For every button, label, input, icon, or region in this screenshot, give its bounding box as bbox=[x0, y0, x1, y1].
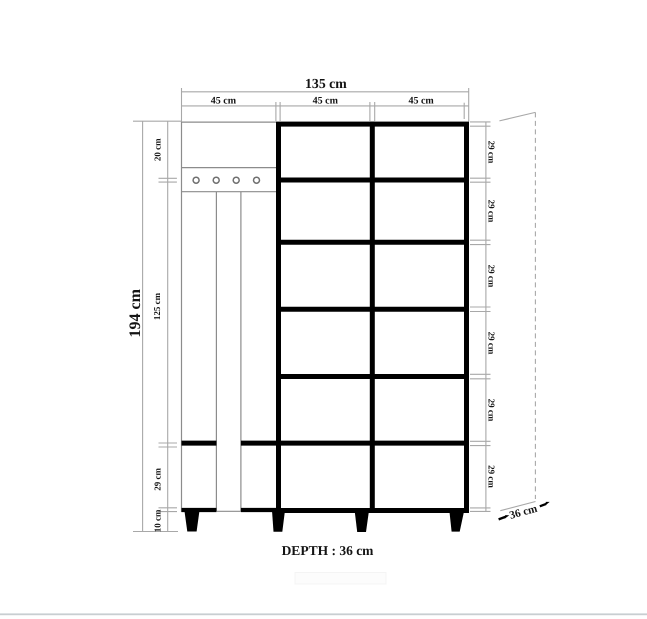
svg-text:29 cm: 29 cm bbox=[486, 332, 496, 355]
svg-text:45 cm: 45 cm bbox=[408, 95, 434, 106]
svg-text:20 cm: 20 cm bbox=[152, 138, 162, 161]
svg-text:29 cm: 29 cm bbox=[486, 465, 496, 488]
svg-text:194 cm: 194 cm bbox=[127, 288, 144, 337]
svg-text:125 cm: 125 cm bbox=[152, 292, 162, 320]
svg-text:29 cm: 29 cm bbox=[486, 399, 496, 422]
svg-text:135 cm: 135 cm bbox=[305, 76, 347, 91]
svg-text:29 cm: 29 cm bbox=[152, 468, 162, 491]
svg-text:45 cm: 45 cm bbox=[211, 95, 237, 106]
svg-text:DEPTH : 36 cm: DEPTH : 36 cm bbox=[282, 543, 375, 558]
svg-text:10 cm: 10 cm bbox=[152, 509, 162, 532]
svg-text:29 cm: 29 cm bbox=[486, 200, 496, 223]
svg-text:45 cm: 45 cm bbox=[313, 95, 339, 106]
svg-text:29 cm: 29 cm bbox=[486, 265, 496, 288]
svg-text:29 cm: 29 cm bbox=[486, 141, 496, 164]
